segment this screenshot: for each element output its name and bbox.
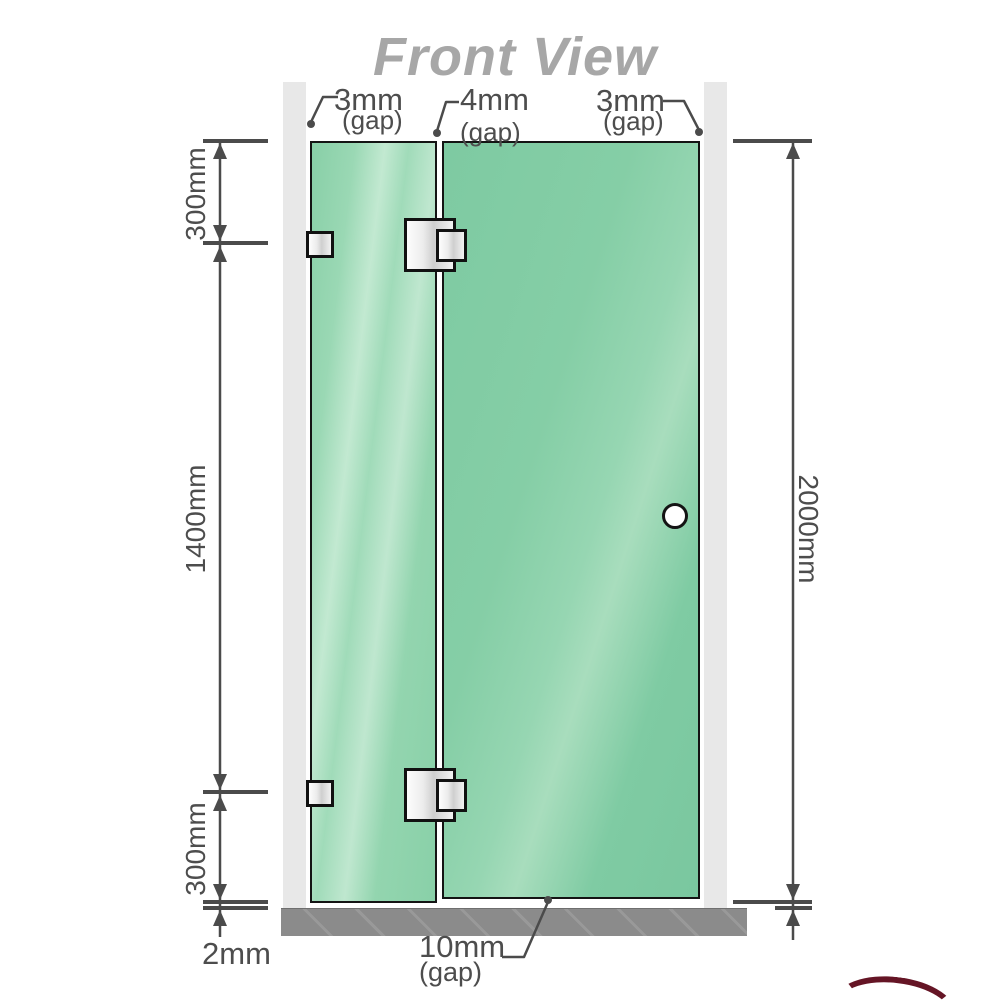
partial-logo-swoosh-icon (830, 970, 961, 1000)
wall-bracket-top-icon (306, 231, 334, 258)
gap-label-middle-suffix: (gap) (460, 117, 521, 148)
left-wall-channel (283, 82, 306, 908)
bottom-hinge-clamp-icon (436, 779, 467, 812)
dimension-label-bottom-300mm: 300mm (180, 749, 212, 949)
dimension-label-top-300mm: 300mm (180, 94, 212, 294)
right-wall-channel (704, 82, 727, 908)
gap-label-right-suffix: (gap) (603, 106, 664, 137)
door-bottom-gap-label-suffix: (gap) (419, 957, 482, 988)
diagram-title: Front View (290, 26, 740, 88)
dimension-label-right-2000mm: 2000mm (792, 429, 824, 629)
top-hinge-clamp-icon (436, 229, 467, 262)
floor-gap-label-2mm: 2mm (202, 936, 271, 972)
door-glass-panel (442, 141, 700, 899)
dimension-label-middle-1400mm: 1400mm (180, 419, 212, 619)
gap-label-middle-value: 4mm (460, 82, 529, 118)
door-knob-icon (662, 503, 688, 529)
gap-label-left-suffix: (gap) (342, 105, 403, 136)
wall-bracket-bottom-icon (306, 780, 334, 807)
floor-base-bar (281, 908, 747, 936)
front-view-diagram: Front View (0, 0, 1000, 1000)
